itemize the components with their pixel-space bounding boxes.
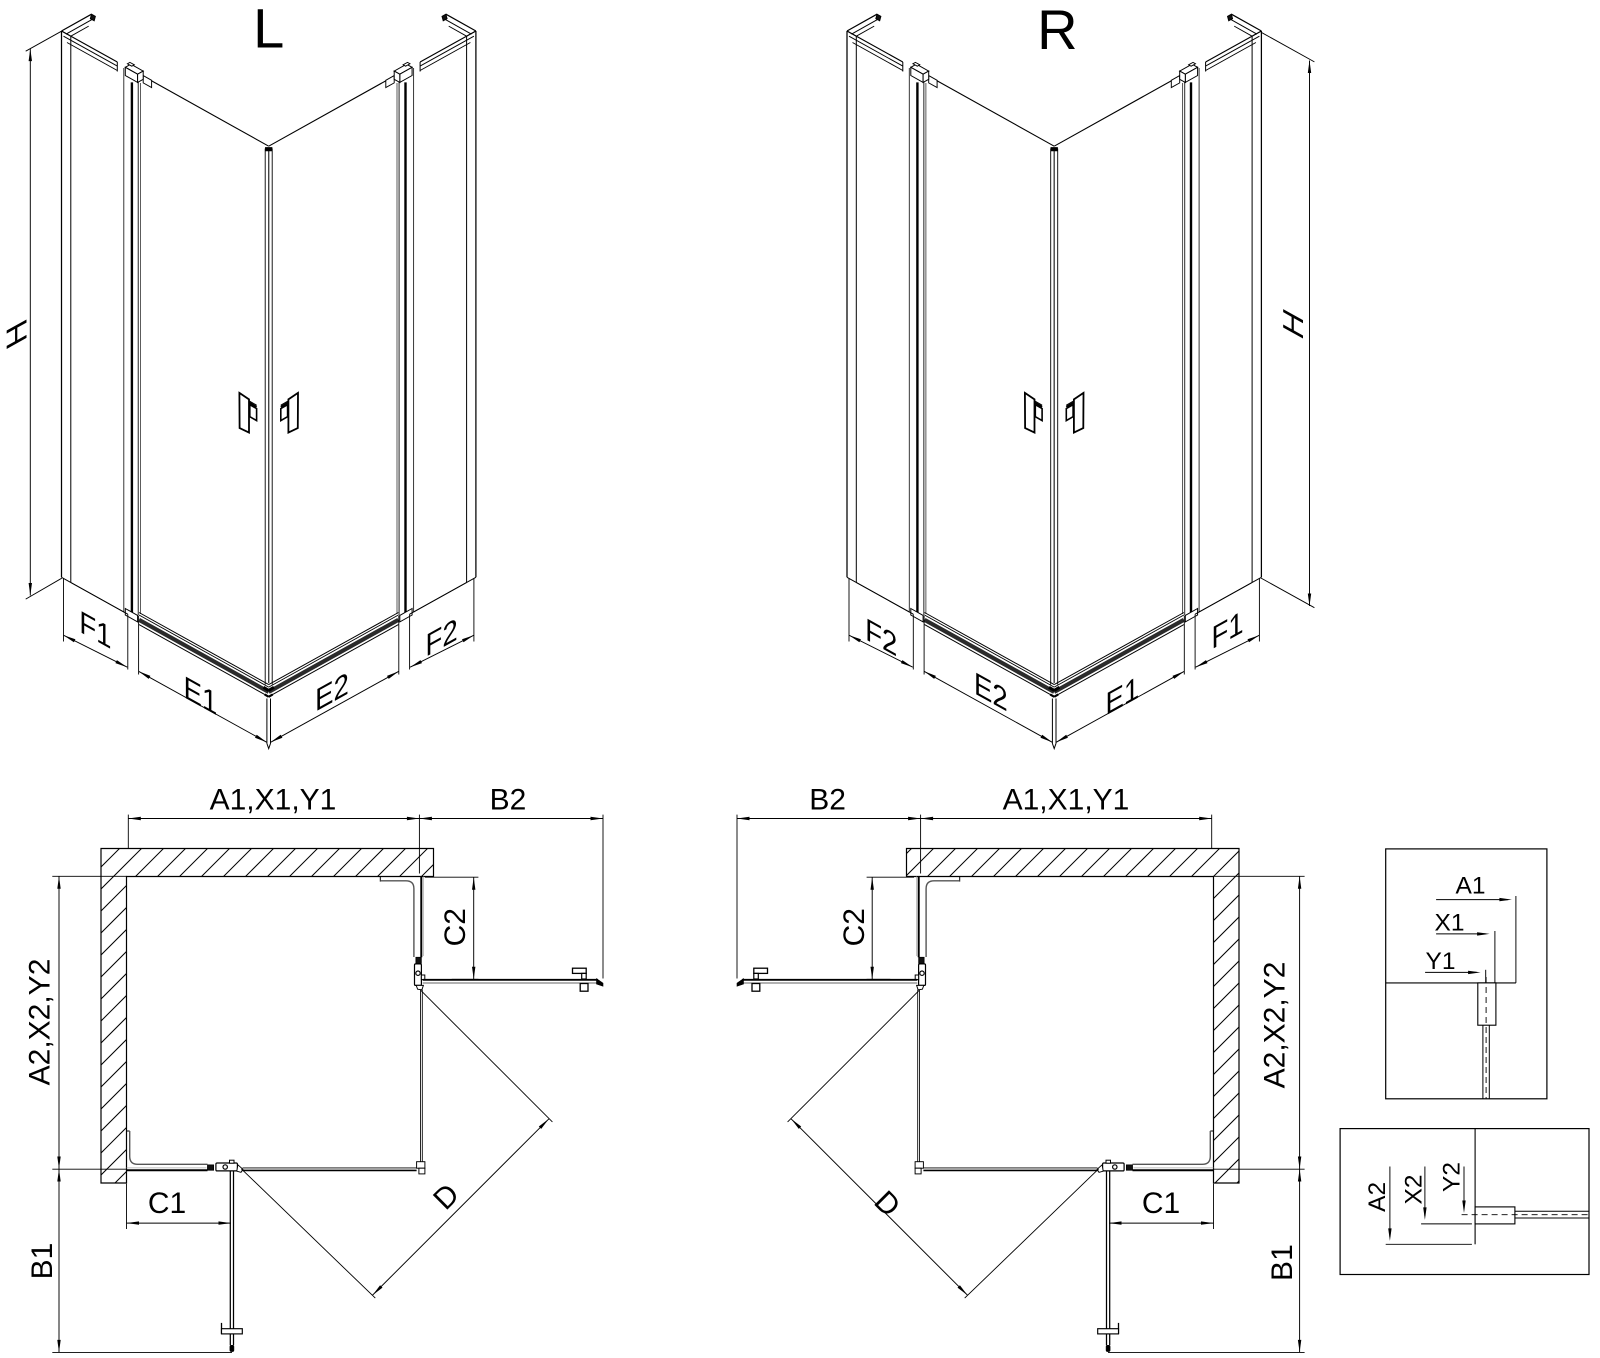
svg-text:B1: B1	[26, 1243, 59, 1280]
svg-text:C1: C1	[148, 1187, 186, 1220]
svg-text:A1,X1,Y1: A1,X1,Y1	[210, 784, 337, 817]
svg-text:Y2: Y2	[1438, 1162, 1465, 1192]
svg-text:C2: C2	[838, 908, 871, 946]
svg-text:C2: C2	[439, 908, 472, 946]
svg-text:Y1: Y1	[1426, 948, 1456, 975]
svg-text:B1: B1	[1266, 1244, 1299, 1281]
svg-text:A1: A1	[1456, 873, 1486, 900]
svg-text:L: L	[253, 0, 284, 59]
svg-text:X2: X2	[1400, 1175, 1427, 1205]
svg-text:B2: B2	[490, 784, 527, 817]
svg-text:A1,X1,Y1: A1,X1,Y1	[1003, 784, 1130, 817]
svg-text:B2: B2	[809, 784, 846, 817]
svg-text:X1: X1	[1435, 910, 1465, 937]
svg-text:R: R	[1037, 0, 1077, 61]
svg-text:A2,X2,Y2: A2,X2,Y2	[1259, 962, 1292, 1089]
svg-text:C1: C1	[1142, 1187, 1180, 1220]
svg-text:A2: A2	[1364, 1182, 1391, 1212]
svg-text:A2,X2,Y2: A2,X2,Y2	[24, 959, 57, 1086]
